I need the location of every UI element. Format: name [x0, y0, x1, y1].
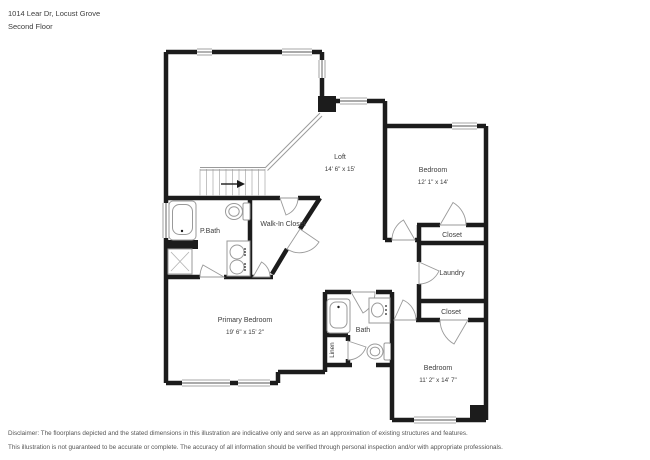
room-label-loft: Loft	[334, 154, 346, 161]
room-label-primary-bedroom: Primary Bedroom	[218, 317, 273, 324]
bathtub-icon	[327, 299, 350, 333]
railing-icon	[265, 113, 322, 171]
room-label-linen: Linen	[329, 342, 336, 358]
staircase-icon	[200, 168, 265, 197]
stair-direction-arrow-icon	[221, 180, 245, 188]
disclaimer-line-2: This illustration is not guaranteed to b…	[8, 441, 648, 455]
room-label-bedroom-top: Bedroom	[419, 167, 448, 174]
room-dims-bedroom-top: 12' 1" x 14'	[418, 179, 449, 186]
room-label-bedroom-bottom: Bedroom	[424, 365, 453, 372]
room-label-pbath: P.Bath	[200, 228, 220, 235]
toilet-icon	[367, 343, 391, 360]
room-dims-primary-bedroom: 19' 6" x 15' 2"	[226, 329, 264, 336]
disclaimer-line-1: Disclaimer: The floorplans depicted and …	[8, 427, 648, 441]
room-dims-loft: 14' 6" x 15'	[325, 166, 356, 173]
bath-divider-wall	[166, 240, 198, 249]
disclaimer: Disclaimer: The floorplans depicted and …	[8, 427, 648, 454]
shower-icon	[168, 249, 192, 274]
floorplan-page: 1014 Lear Dr, Locust Grove Second Floor	[0, 0, 650, 460]
room-label-laundry: Laundry	[439, 270, 465, 277]
room-dims-bedroom-bottom: 11' 2" x 14' 7"	[419, 377, 457, 384]
room-label-closet-bottom: Closet	[441, 309, 461, 316]
sink-icon	[369, 298, 390, 323]
room-label-closet-top: Closet	[442, 232, 462, 239]
toilet-icon	[226, 203, 251, 220]
vanity-sink-icon	[227, 241, 250, 276]
bathtub-icon	[169, 201, 196, 240]
room-label-bath: Bath	[356, 327, 371, 334]
chimney-block	[470, 405, 486, 420]
wall-post	[318, 96, 336, 112]
room-label-walkin-closet: Walk-In Closet	[260, 221, 305, 228]
floorplan-drawing: Loft 14' 6" x 15' Bedroom 12' 1" x 14' C…	[0, 0, 650, 460]
